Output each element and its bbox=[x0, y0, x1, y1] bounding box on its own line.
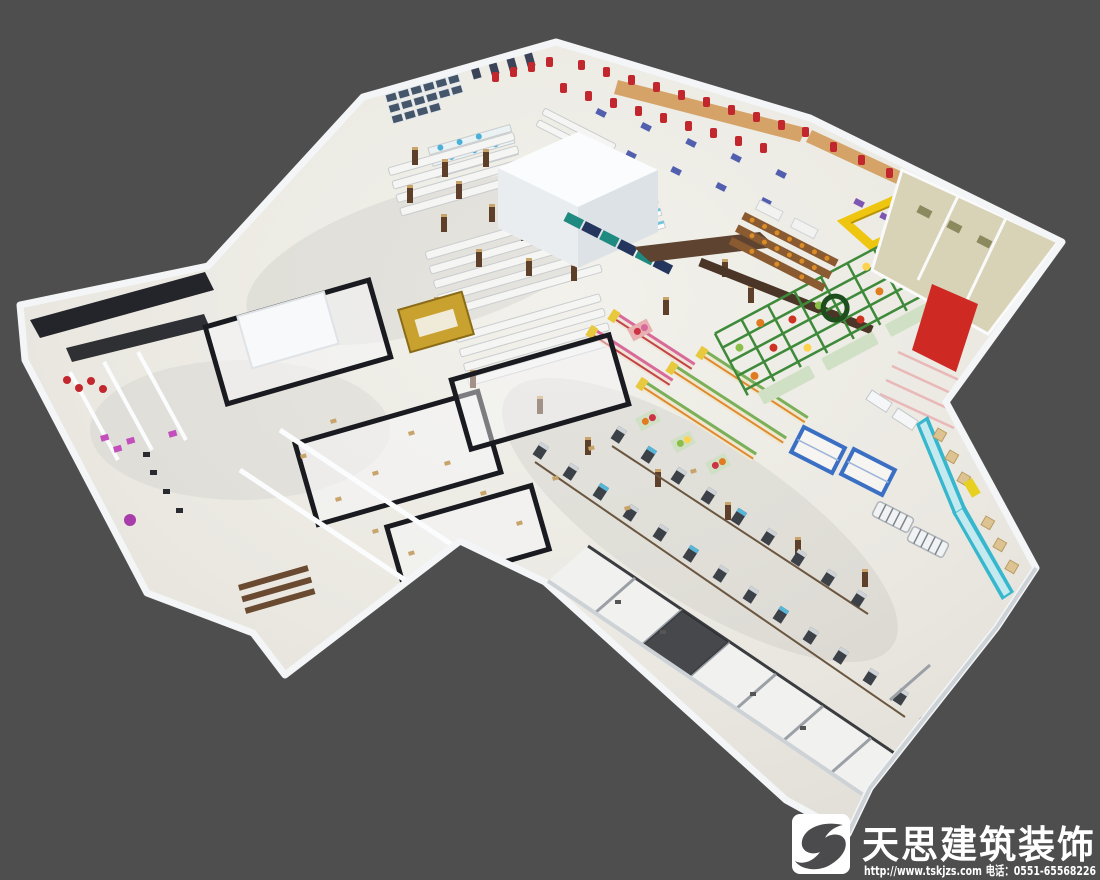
purple-display bbox=[124, 514, 136, 526]
floorplan-render: 天思建筑装饰 http://www.tskjzs.com电话：0551-6556… bbox=[0, 0, 1100, 880]
render-canvas: 天思建筑装饰 http://www.tskjzs.com电话：0551-6556… bbox=[0, 0, 1100, 880]
watermark-phone-label: 电话： bbox=[986, 863, 1014, 878]
watermark-url: http://www.tskjzs.com bbox=[864, 863, 982, 878]
watermark: 天思建筑装饰 http://www.tskjzs.com电话：0551-6556… bbox=[792, 814, 1096, 878]
watermark-phone: 0551-65568226 bbox=[1014, 863, 1096, 878]
watermark-contact: http://www.tskjzs.com电话：0551-65568226 bbox=[864, 863, 1096, 878]
watermark-brand: 天思建筑装饰 bbox=[862, 823, 1096, 867]
